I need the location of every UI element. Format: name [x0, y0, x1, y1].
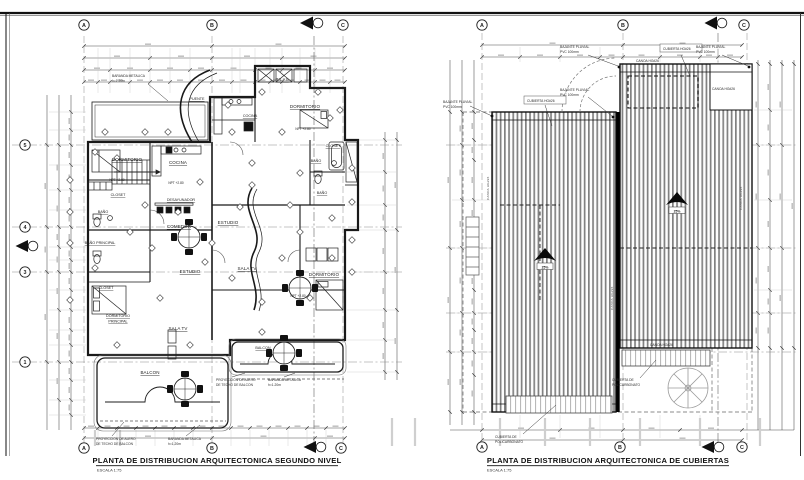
label-canoa-3: CANOA HG#26 — [650, 343, 673, 347]
label-closet-a: CLOSET — [111, 193, 127, 197]
right-plan-scale: ESCALA 1:75 — [487, 468, 512, 473]
right-plan — [463, 17, 752, 454]
label-baranda-bot-2: h=1.20m — [168, 442, 181, 446]
label-canoa-v1: CANOA HG#26 — [486, 176, 490, 200]
label-poli-2a: CUBIERTA DE — [495, 435, 517, 439]
label-estudio-a: ESTUDIO — [180, 269, 201, 274]
grid-bubble: 1 — [24, 360, 27, 366]
label-npt-3: NPT +2.80 — [295, 127, 310, 131]
sheet-titles: PLANTA DE DISTRIBUCION ARQUITECTONICA SE… — [93, 456, 730, 473]
grid-bubble: C — [742, 23, 746, 29]
grid-bubble: 4 — [24, 225, 27, 231]
label-bajante-4a: BAJANTE PLUVIAL — [696, 45, 725, 49]
label-poli-1a: CUBIERTA DE — [612, 378, 634, 382]
label-canoa-2: CANOA HG#26 — [712, 87, 735, 91]
label-dormitorio-b: DORMITORIO — [290, 104, 321, 109]
label-alero-bot-1: PROYECCION DE ALERO — [96, 437, 136, 441]
label-bano-c: BAÑO — [317, 190, 328, 195]
label-slope-right: 25% — [674, 210, 681, 214]
grid-bubble: 5 — [24, 143, 27, 149]
grid-bubble: A — [82, 446, 86, 452]
label-canoa-1: CANOA HG#26 — [636, 59, 659, 63]
left-plan-scale: ESCALA 1:75 — [97, 468, 122, 473]
grid-bubble: C — [341, 23, 345, 29]
label-bajante-1a: BAJANTE PLUVIAL — [443, 100, 472, 104]
label-balcon-a: BALCON — [140, 370, 159, 375]
label-bajante-3b: PVC 100mm — [560, 93, 579, 97]
left-plan-labels: PILAS PUENTE DORMITORIO COCINA CLOSET BA… — [85, 77, 341, 375]
grid-bubble: A — [82, 23, 86, 29]
label-poli-2b: POLICARBONATO — [495, 440, 524, 444]
label-alero-bot-2: DE TECHO DE BALCON — [96, 442, 134, 446]
label-alero-mid-1: PROYECCION DE ALERO — [216, 378, 256, 382]
label-alero-mid-2: DE TECHO DE BALCON — [216, 383, 254, 387]
roof-panel-left — [492, 112, 616, 412]
label-npt-1: NPT +2.80 — [109, 178, 124, 182]
grid-bubble: B — [618, 445, 622, 451]
label-baranda-mid-1: BARANDA METALICA — [268, 378, 302, 382]
label-poli-1b: POLICARBONATO — [612, 383, 641, 387]
label-canoa-v2: CANOA HG#26 — [610, 286, 614, 310]
label-bano-a: BAÑO — [98, 209, 109, 214]
label-bano-b: BAÑO — [311, 158, 322, 163]
label-bajante-4b: PVC 100mm — [696, 50, 715, 54]
label-cocina-a: COCINA — [169, 160, 187, 165]
grid-bubble: C — [740, 445, 744, 451]
grid-bubble: B — [210, 23, 214, 29]
label-baranda-mid-2: h=1.20m — [268, 383, 281, 387]
label-sala-tv-b: SALA TV — [238, 266, 257, 271]
label-cubierta-2: CUBIERTA HG#26 — [663, 47, 691, 51]
grid-bubble: A — [480, 445, 484, 451]
grid-bubble: C — [339, 446, 343, 452]
label-estudio-b: ESTUDIO — [218, 220, 239, 225]
grid-bubble: B — [210, 446, 214, 452]
left-plan-title: PLANTA DE DISTRIBUCION ARQUITECTONICA SE… — [93, 456, 342, 465]
label-bajante-1b: PVC 100mm — [443, 105, 462, 109]
chimney-column — [466, 217, 479, 275]
label-bajante-3a: BAJANTE PLUVIAL — [560, 88, 589, 92]
label-closet-c: CLOSET — [326, 144, 342, 148]
label-canoa-v3: CANOA HG#26 — [739, 186, 743, 210]
label-comedor: COMEDOR — [167, 224, 192, 229]
label-baranda-top-1: BARANDA METALICA — [112, 74, 146, 78]
label-npt-4: NPT +2.80 — [290, 294, 305, 298]
label-baranda-top-2: h=1.20m — [112, 79, 125, 83]
label-bajante-2b: PVC 100mm — [560, 50, 579, 54]
grid-bubble: 3 — [24, 270, 27, 276]
label-puente: PUENTE — [190, 97, 205, 101]
label-dormitorio-ppal-1: DORMITORIO — [106, 314, 130, 318]
label-balcon-b: BALCON — [255, 346, 271, 350]
label-baranda-bot-1: BARANDA METALICA — [168, 437, 202, 441]
label-cocina-b: COCINA — [243, 114, 258, 118]
label-cubierta-1: CUBIERTA HG#26 — [527, 99, 555, 103]
grid-bubble: A — [480, 23, 484, 29]
label-closet-b: CLOSET — [99, 286, 115, 290]
label-npt-2: NPT +2.80 — [168, 181, 183, 185]
right-plan-title: PLANTA DE DISTRIBUCION ARQUITECTONICA DE… — [487, 456, 729, 465]
label-pilas: PILAS — [275, 77, 288, 82]
label-dormitorio-a: DORMITORIO — [112, 157, 143, 162]
grid-bubble: B — [621, 23, 625, 29]
roof-vent-fan — [668, 368, 708, 408]
label-bano-ppal: BAÑO PRINCIPAL — [85, 240, 116, 245]
blueprint-canvas: ABCABC5431ABCABC PILAS PUENTE DORMITORIO… — [0, 0, 804, 480]
label-dormitorio-ppal-2: PRINCIPAL — [108, 320, 127, 324]
label-dormitorio-c: DORMITORIO — [309, 272, 340, 277]
label-sala-tv-a: SALA TV — [169, 326, 188, 331]
architectural-sheet: ABCABC5431ABCABC PILAS PUENTE DORMITORIO… — [0, 0, 804, 480]
label-slope-left: 25% — [542, 266, 549, 270]
label-desayunador: DESAYUNADOR — [167, 198, 196, 202]
label-bajante-2a: BAJANTE PLUVIAL — [560, 45, 589, 49]
left-plan-walls — [88, 66, 358, 355]
